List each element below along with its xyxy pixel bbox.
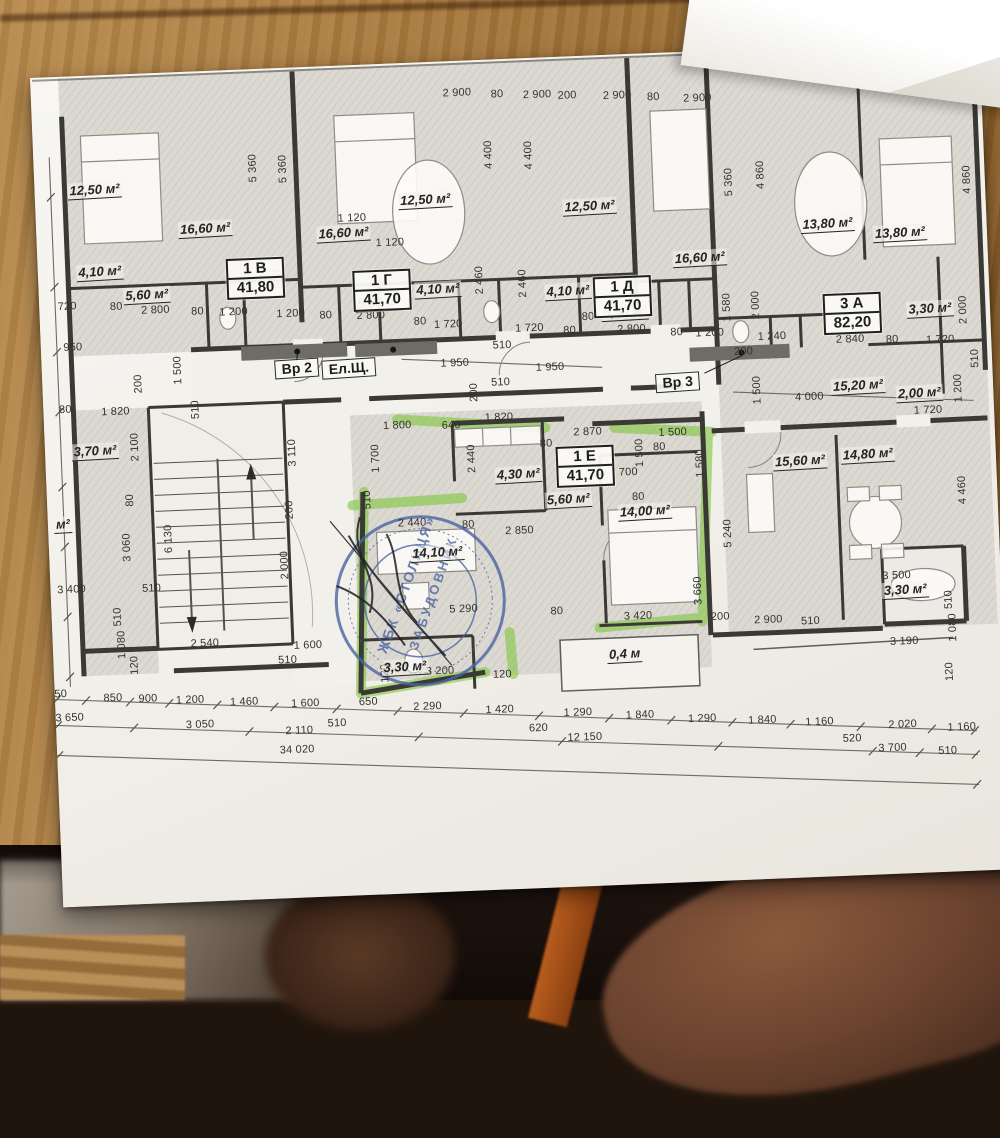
dimension-label: 650 xyxy=(359,696,378,709)
dimension-label: 80 xyxy=(462,519,475,531)
apartment-label-box: 1 Г41,70 xyxy=(352,269,411,312)
room-area-label: 16,60 м² xyxy=(316,224,371,244)
dimension-label: 2 020 xyxy=(888,718,917,731)
dimension-label: 1 080 xyxy=(946,613,959,642)
apartment-id: 1 Д xyxy=(595,277,649,298)
room-area-label: 16,60 м² xyxy=(178,219,233,239)
dimension-label: 4 400 xyxy=(522,141,535,170)
dimension-label: 2 840 xyxy=(836,333,865,346)
dimension-label: 2 850 xyxy=(505,524,534,537)
dimension-label: 3 500 xyxy=(882,569,911,582)
dimension-label: 3 660 xyxy=(692,576,705,605)
room-area-label: 3,30 м² xyxy=(906,299,954,319)
plan-text-labels: 2 900802 9002002 900802 9005 3605 3604 4… xyxy=(30,40,1000,907)
dimension-label: 80 xyxy=(124,494,136,507)
dimension-label: 12 150 xyxy=(567,731,602,744)
dimension-label: 200 xyxy=(468,383,481,402)
dimension-label: 5 360 xyxy=(246,154,259,183)
dimension-label: 1 700 xyxy=(369,444,382,473)
dimension-label: 80 xyxy=(414,315,427,327)
dimension-label: 1 600 xyxy=(293,639,322,652)
dimension-label: 1 820 xyxy=(101,405,130,418)
dimension-label: 6 130 xyxy=(162,524,175,553)
dimension-label: 1 200 xyxy=(176,694,205,707)
dimension-label: 4 860 xyxy=(960,165,973,194)
floor-plan-sheet[interactable]: ЖБК «СТОЛИЦЯ» ЗАБУДОВНИК 2 900802 900200… xyxy=(30,40,1000,907)
room-area-label: 14,10 м² xyxy=(410,543,465,563)
apartment-id: 1 Г xyxy=(354,271,408,292)
dimension-label: 3 190 xyxy=(890,635,919,648)
dimension-label: 1 290 xyxy=(563,706,592,719)
dimension-label: 4 400 xyxy=(482,140,495,169)
apartment-label-box: 1 В41,80 xyxy=(226,257,285,300)
dimension-label: 1 840 xyxy=(626,708,655,721)
dimension-label: 2 460 xyxy=(473,266,486,295)
room-area-label: 15,60 м² xyxy=(773,451,828,471)
dimension-label: 2 800 xyxy=(617,322,646,335)
dimension-label: 1 720 xyxy=(434,318,463,331)
entrance-label: Ел.Щ. xyxy=(321,357,376,380)
dimension-label: 900 xyxy=(138,692,157,705)
dimension-label: 3 400 xyxy=(57,583,86,596)
dimension-label: 5 290 xyxy=(449,602,478,615)
dimension-label: 2 440 xyxy=(398,516,427,529)
dimension-label: 4 460 xyxy=(956,475,969,504)
dimension-label: 3 060 xyxy=(120,533,133,562)
dimension-label: 1 800 xyxy=(383,419,412,432)
dimension-label: 1 950 xyxy=(536,361,565,374)
dimension-label: 200 xyxy=(132,374,145,393)
dimension-label: 620 xyxy=(529,722,548,735)
apartment-total-area: 41,70 xyxy=(355,290,409,309)
dimension-label: 1 200 xyxy=(276,307,305,320)
room-area-label: 15,20 м² xyxy=(831,376,886,396)
dimension-label: 5 360 xyxy=(722,168,735,197)
room-area-label: 3,30 м² xyxy=(881,580,929,600)
dimension-label: 510 xyxy=(492,339,511,352)
dimension-label: 3 650 xyxy=(55,711,84,724)
dimension-label: 1 420 xyxy=(485,703,514,716)
person-hand-shadow xyxy=(265,880,455,1030)
dimension-label: 1 290 xyxy=(688,712,717,725)
apartment-id: 1 В xyxy=(228,259,282,280)
dimension-label: 720 xyxy=(57,300,76,313)
dimension-label: 80 xyxy=(550,605,563,617)
dimension-label: 1 120 xyxy=(337,212,366,225)
dimension-label: 120 xyxy=(943,662,956,681)
dimension-label: 2 000 xyxy=(749,291,762,320)
dimension-label: 1 720 xyxy=(926,333,955,346)
dimension-label: 3 200 xyxy=(426,664,455,677)
dimension-label: 1 580 xyxy=(693,449,706,478)
room-area-label: 12,50 м² xyxy=(398,190,453,210)
room-area-label: 3,30 м² xyxy=(381,658,429,678)
dimension-label: 1 120 xyxy=(375,236,404,249)
dimension-label: 2 900 xyxy=(754,613,783,626)
dimension-label: 2 100 xyxy=(128,433,141,462)
room-area-label: 12,50 м² xyxy=(562,197,617,217)
entrance-label: Вр 3 xyxy=(655,371,701,393)
dimension-label: 80 xyxy=(540,437,553,449)
dimension-label: 700 xyxy=(619,466,638,479)
dimension-label: 1 820 xyxy=(485,411,514,424)
dimension-label: 1 500 xyxy=(633,438,646,467)
dimension-label: 2 900 xyxy=(603,89,632,102)
dimension-label: 120 xyxy=(128,656,141,675)
room-area-label: м² xyxy=(54,516,73,534)
dimension-label: 2 870 xyxy=(573,425,602,438)
dimension-label: 2 800 xyxy=(141,304,170,317)
dimension-label: 1 580 xyxy=(720,293,733,322)
dimension-label: 950 xyxy=(63,341,82,354)
dimension-label: 3 110 xyxy=(286,439,299,467)
dimension-label: 2 540 xyxy=(190,637,219,650)
dimension-label: 2 900 xyxy=(523,88,552,101)
dimension-label: 2 440 xyxy=(465,444,478,473)
dimension-label: 1 160 xyxy=(947,721,976,734)
dimension-label: 200 xyxy=(283,500,296,519)
dimension-label: 510 xyxy=(942,590,955,609)
dimension-label: 2 000 xyxy=(956,295,969,324)
dimension-label: 5 360 xyxy=(276,154,289,183)
dimension-label: 4 860 xyxy=(754,160,767,189)
room-area-label: 13,80 м² xyxy=(872,223,927,243)
dimension-label: 850 xyxy=(103,692,122,705)
dimension-label: 34 020 xyxy=(280,743,315,756)
dimension-label: 80 xyxy=(59,404,72,416)
dimension-label: 80 xyxy=(670,326,683,338)
dimension-label: 80 xyxy=(632,491,645,503)
dimension-label: 510 xyxy=(111,607,124,626)
apartment-label-box: 1 Д41,70 xyxy=(593,275,652,318)
dimension-label: 120 xyxy=(493,668,512,681)
dimension-label: 1 200 xyxy=(695,326,724,339)
dimension-label: 80 xyxy=(647,91,660,103)
room-area-label: 4,10 м² xyxy=(414,280,462,300)
dimension-label: 2 460 xyxy=(516,269,529,298)
dimension-label: 510 xyxy=(142,582,161,595)
dimension-label: 80 xyxy=(653,441,666,453)
dimension-label: 640 xyxy=(442,419,461,432)
apartment-total-area: 41,70 xyxy=(596,296,650,315)
dimension-label: 1 200 xyxy=(219,305,248,318)
dimension-label: 3 050 xyxy=(186,718,215,731)
entrance-label: Вр 2 xyxy=(274,358,320,380)
room-area-label: 4,10 м² xyxy=(544,282,592,302)
dimension-label: 510 xyxy=(278,654,297,667)
dimension-label: 1 500 xyxy=(171,356,184,385)
room-area-label: 16,60 м² xyxy=(672,248,727,268)
room-area-label: 13,80 м² xyxy=(800,214,855,234)
room-area-label: 4,10 м² xyxy=(76,263,124,283)
dimension-label: 510 xyxy=(361,490,374,509)
dimension-label: 510 xyxy=(189,400,202,419)
dimension-label: 2 290 xyxy=(413,700,442,713)
photo-of-floor-plan: { "photo": { "scene": "floor plan sheet … xyxy=(0,0,1000,1000)
dimension-label: 1 200 xyxy=(952,374,965,403)
dimension-label: 5 240 xyxy=(721,519,734,548)
dimension-label: 80 xyxy=(110,300,123,312)
room-area-label: 5,60 м² xyxy=(544,490,592,510)
dimension-label: 80 xyxy=(319,309,332,321)
dimension-label: 1 240 xyxy=(757,330,786,343)
dimension-label: 3 700 xyxy=(878,741,907,754)
dimension-label: 1 950 xyxy=(440,357,469,370)
apartment-total-area: 41,70 xyxy=(558,466,612,485)
apartment-total-area: 41,80 xyxy=(229,278,283,297)
room-area-label: 12,50 м² xyxy=(67,180,122,200)
dimension-label: 2 900 xyxy=(683,92,712,105)
dimension-label: 4 000 xyxy=(795,390,824,403)
dimension-label: 3 420 xyxy=(624,609,653,622)
dimension-label: 520 xyxy=(842,732,861,745)
dimension-label: 2 110 xyxy=(285,724,313,737)
dimension-label: 200 xyxy=(734,345,753,358)
dimension-label: 2 000 xyxy=(278,551,291,580)
dimension-label: 1 460 xyxy=(230,695,259,708)
dimension-label: 80 xyxy=(563,324,576,336)
dimension-label: 50 xyxy=(54,688,67,700)
dimension-label: 80 xyxy=(886,333,899,345)
apartment-label-box: 1 Е41,70 xyxy=(555,445,614,488)
dimension-label: 510 xyxy=(491,376,510,389)
room-area-label: 2,00 м² xyxy=(896,384,944,404)
dimension-label: 1 720 xyxy=(515,322,544,335)
dimension-label: 80 xyxy=(191,305,204,317)
dimension-label: 510 xyxy=(801,615,820,628)
wood-planks xyxy=(0,935,185,1000)
dimension-label: 510 xyxy=(938,744,957,757)
dimension-label: 200 xyxy=(557,89,576,102)
room-area-label: 14,80 м² xyxy=(840,445,895,465)
dimension-label: 1 840 xyxy=(748,714,777,727)
room-area-label: 14,00 м² xyxy=(617,502,672,522)
dimension-label: 510 xyxy=(327,717,346,730)
room-area-label: 3,70 м² xyxy=(71,442,119,462)
room-area-label: 0,4 м xyxy=(607,645,643,664)
apartment-label-box: 3 А82,20 xyxy=(823,292,882,335)
dimension-label: 1 500 xyxy=(658,426,687,439)
dimension-label: 2 900 xyxy=(442,86,471,99)
dimension-label: 1 720 xyxy=(914,404,943,417)
dimension-label: 80 xyxy=(490,88,503,100)
dimension-label: 1 500 xyxy=(751,376,764,405)
dimension-label: 510 xyxy=(969,349,982,368)
apartment-id: 3 А xyxy=(825,294,879,315)
dimension-label: 80 xyxy=(581,311,594,323)
apartment-id: 1 Е xyxy=(558,447,612,468)
dimension-label: 1 600 xyxy=(291,697,320,710)
apartment-total-area: 82,20 xyxy=(825,313,879,332)
dimension-label: 200 xyxy=(710,610,729,623)
room-area-label: 5,60 м² xyxy=(123,286,171,306)
room-area-label: 4,30 м² xyxy=(494,465,542,485)
dimension-label: 1 080 xyxy=(115,630,128,659)
dimension-label: 1 160 xyxy=(805,715,834,728)
